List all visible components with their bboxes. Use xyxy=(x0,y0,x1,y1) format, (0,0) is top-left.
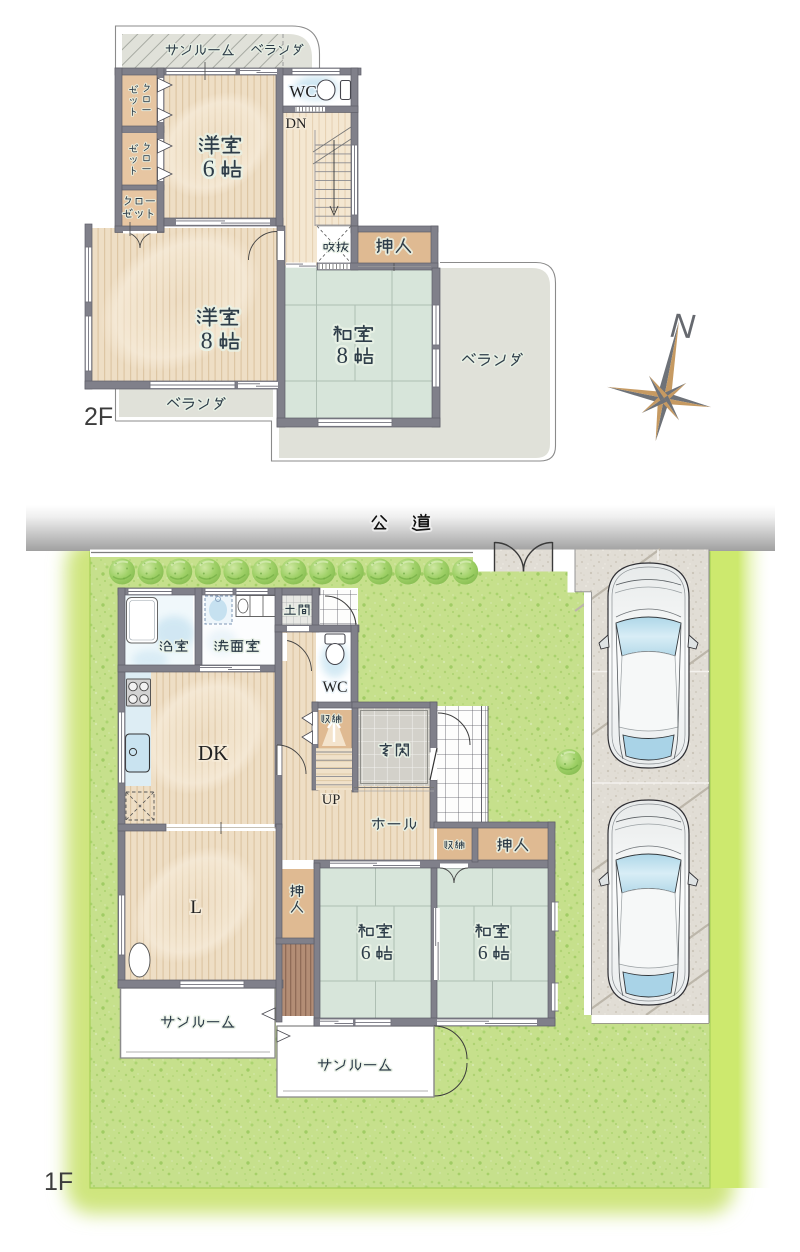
svg-text:8: 8 xyxy=(201,329,213,355)
svg-text:WC: WC xyxy=(289,82,316,101)
svg-text:N: N xyxy=(669,307,697,347)
svg-text:1F: 1F xyxy=(44,1168,73,1196)
svg-text:6: 6 xyxy=(203,157,215,183)
svg-text:DN: DN xyxy=(286,116,307,132)
svg-text:WC: WC xyxy=(323,679,348,696)
svg-text:UP: UP xyxy=(322,792,341,808)
svg-text:6: 6 xyxy=(361,943,371,964)
svg-text:DK: DK xyxy=(198,741,228,765)
svg-text:2F: 2F xyxy=(84,403,113,431)
svg-text:6: 6 xyxy=(478,943,488,964)
svg-text:8: 8 xyxy=(336,343,348,368)
svg-text:L: L xyxy=(190,897,202,918)
